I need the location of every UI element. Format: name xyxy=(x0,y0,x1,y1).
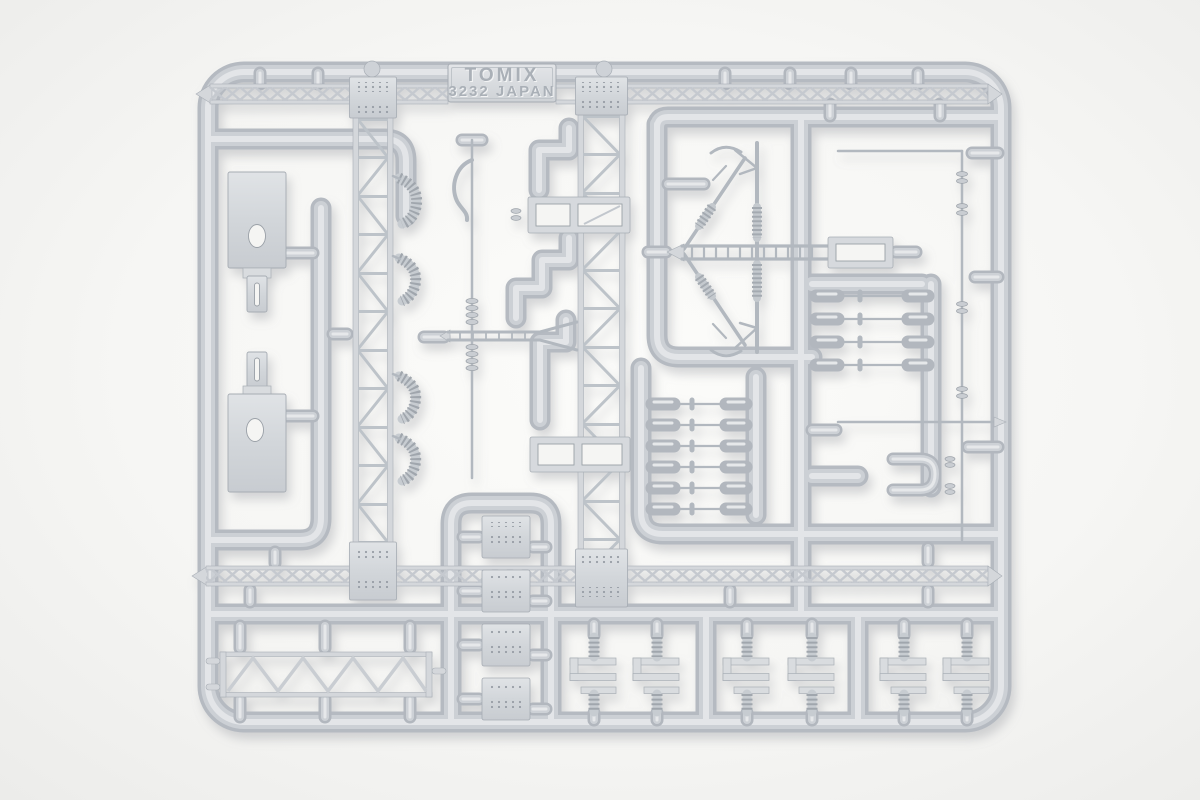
rect-frame-part-lower xyxy=(530,437,630,472)
rivet-plate xyxy=(482,624,530,666)
ball-gate xyxy=(596,61,612,77)
rivet-plate xyxy=(482,516,530,558)
thin-wire-parts xyxy=(454,140,478,478)
coil-spring-parts xyxy=(393,176,417,481)
rod xyxy=(816,292,928,369)
insulator-rod-row xyxy=(816,292,928,369)
insulator-rod-column xyxy=(652,400,746,513)
hanger-bracket xyxy=(943,658,989,694)
hanger-bracket xyxy=(570,658,616,694)
hanger-bracket xyxy=(788,658,834,694)
hanger-bracket xyxy=(633,658,679,694)
label-text-number: 3232 JAPAN xyxy=(448,83,555,100)
lattice-tower-left xyxy=(350,77,397,600)
rect-frame-part-upper xyxy=(511,197,630,233)
rivet-plate xyxy=(482,678,530,720)
anchor-plate-lower xyxy=(228,352,286,492)
hanger-bracket-row xyxy=(570,637,989,712)
hanger-bracket xyxy=(880,658,926,694)
catenary-mast-assembly xyxy=(684,143,757,356)
truss-beam xyxy=(206,652,446,697)
lattice-tower-right xyxy=(576,77,628,607)
ladder-beam xyxy=(667,237,893,268)
sprue: TOMIX TOMIX 3232 JAPAN 3232 JAPAN xyxy=(192,61,1006,722)
anchor-plate-upper xyxy=(228,172,286,312)
rivet-plate xyxy=(482,570,530,612)
sprue-photo: TOMIX TOMIX 3232 JAPAN 3232 JAPAN xyxy=(0,0,1200,800)
photo-backdrop: TOMIX TOMIX 3232 JAPAN 3232 JAPAN xyxy=(0,0,1200,800)
maker-label-plate: TOMIX TOMIX 3232 JAPAN 3232 JAPAN xyxy=(448,64,557,102)
ball-gate xyxy=(364,61,380,77)
hanger-bracket xyxy=(723,658,769,694)
